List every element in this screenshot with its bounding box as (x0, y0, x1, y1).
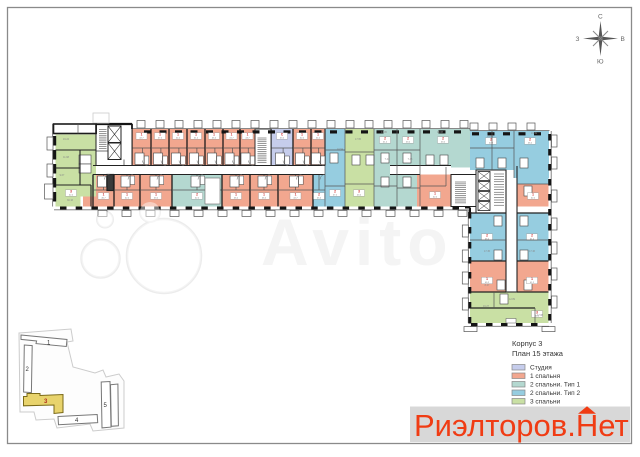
svg-text:14.80: 14.80 (381, 131, 388, 134)
svg-text:Студия: Студия (530, 365, 552, 372)
svg-text:30.16: 30.16 (67, 199, 74, 202)
svg-text:Ю: Ю (597, 59, 604, 66)
svg-text:16.24: 16.24 (63, 138, 70, 141)
svg-text:1: 1 (247, 133, 249, 137)
svg-text:1: 1 (301, 133, 303, 137)
svg-text:2: 2 (318, 193, 320, 197)
svg-text:Риэлторов.Нет: Риэлторов.Нет (414, 408, 629, 443)
svg-text:7.43: 7.43 (385, 158, 390, 161)
svg-text:1: 1 (532, 193, 534, 197)
svg-text:17.45: 17.45 (484, 250, 491, 253)
svg-text:1: 1 (213, 133, 215, 137)
svg-text:3 спальни: 3 спальни (530, 399, 561, 406)
svg-text:2: 2 (486, 234, 488, 238)
svg-text:1: 1 (159, 133, 161, 137)
svg-text:2: 2 (384, 137, 386, 141)
svg-text:3: 3 (358, 190, 360, 194)
svg-text:1: 1 (231, 133, 233, 137)
svg-text:2 спальни. Тип 1: 2 спальни. Тип 1 (530, 382, 580, 389)
svg-text:1: 1 (434, 192, 436, 196)
svg-text:2: 2 (407, 137, 409, 141)
svg-text:10.54: 10.54 (337, 148, 344, 151)
svg-text:17.46: 17.46 (529, 250, 536, 253)
svg-text:1: 1 (195, 133, 197, 137)
svg-text:7.43: 7.43 (408, 158, 413, 161)
svg-text:1: 1 (531, 277, 533, 281)
svg-text:1: 1 (155, 193, 157, 197)
svg-text:2: 2 (334, 190, 336, 194)
svg-text:В: В (621, 36, 625, 43)
svg-text:1: 1 (235, 193, 237, 197)
svg-text:19.49: 19.49 (531, 132, 538, 135)
svg-text:2: 2 (442, 137, 444, 141)
svg-text:2: 2 (196, 193, 198, 197)
svg-text:1: 1 (126, 193, 128, 197)
svg-text:1: 1 (317, 133, 319, 137)
svg-text:1: 1 (177, 133, 179, 137)
svg-text:С: С (598, 14, 603, 21)
svg-text:1: 1 (486, 277, 488, 281)
svg-text:З: З (576, 36, 580, 43)
svg-text:Корпус 3: Корпус 3 (512, 339, 542, 348)
svg-text:План 15 этажа: План 15 этажа (512, 349, 564, 358)
svg-text:2: 2 (529, 138, 531, 142)
svg-text:17.65: 17.65 (355, 138, 362, 141)
svg-text:1: 1 (141, 133, 143, 137)
svg-text:1 спальня: 1 спальня (530, 373, 561, 380)
svg-text:16.80: 16.80 (487, 135, 494, 138)
svg-text:19.88: 19.88 (437, 131, 444, 134)
svg-text:11.98: 11.98 (63, 156, 69, 159)
svg-text:9.67: 9.67 (60, 174, 65, 177)
svg-text:1: 1 (263, 193, 265, 197)
svg-text:12.89: 12.89 (509, 298, 516, 301)
svg-text:17.88: 17.88 (537, 314, 544, 317)
svg-text:8.47: 8.47 (485, 284, 490, 287)
svg-text:2 спальни. Тип 2: 2 спальни. Тип 2 (530, 390, 580, 397)
svg-text:1: 1 (295, 193, 297, 197)
svg-text:Avito: Avito (261, 205, 454, 279)
svg-text:1: 1 (103, 193, 105, 197)
svg-text:3: 3 (70, 190, 72, 194)
svg-text:2: 2 (531, 234, 533, 238)
